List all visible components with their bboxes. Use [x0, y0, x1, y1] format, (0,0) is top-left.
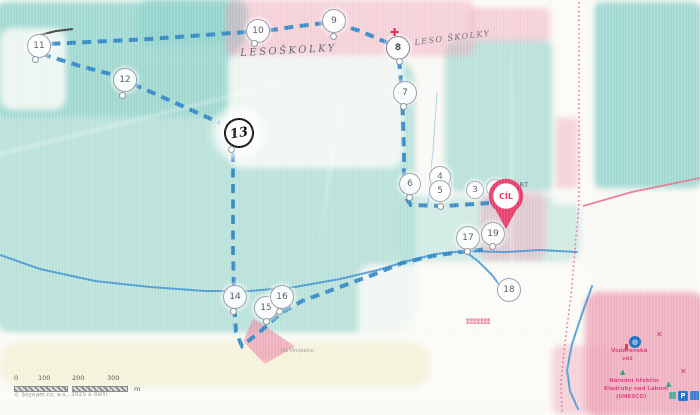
control-marker-dot — [437, 203, 444, 210]
control-10: 10 — [246, 19, 270, 43]
scale-tick: 100 — [38, 374, 50, 382]
map-label: Na Vinopalce — [281, 348, 314, 354]
control-marker-dot — [489, 243, 496, 250]
map-label: (UNESCO) — [616, 394, 647, 400]
control-marker-dot — [330, 33, 337, 40]
control-marker-dot — [396, 58, 403, 65]
control-marker-dot — [406, 194, 413, 201]
scale-tick: 0 — [14, 374, 18, 382]
control-14: 14 — [223, 285, 247, 309]
control-5: 5 — [429, 180, 451, 202]
control-marker-dot — [251, 40, 258, 47]
map-label: věž — [622, 356, 633, 362]
map-label: Národní hřebčín — [609, 378, 659, 384]
poi-square-icon — [669, 392, 676, 399]
tree-icon: ▲ — [620, 369, 625, 376]
parking-icon: P — [678, 391, 688, 401]
forest-patch — [592, 2, 700, 188]
poi-circle-icon: ◍ — [629, 336, 641, 348]
control-6: 6 — [399, 173, 421, 195]
control-18: 18 — [497, 278, 521, 302]
flag-icon — [625, 344, 628, 350]
mill-cross-icon: ✕ — [656, 331, 663, 339]
map-label: Vodárenská — [611, 348, 647, 354]
urban-area — [556, 118, 578, 188]
control-8: 8 — [386, 36, 410, 60]
control-7: 7 — [393, 81, 417, 105]
map-label: Kladruby nad Labem — [604, 386, 668, 392]
control-marker-dot — [230, 308, 237, 315]
finish-label: CÍL — [499, 190, 513, 201]
scale-unit: m — [134, 385, 140, 393]
control-marker-dot — [228, 146, 235, 153]
control-marker-dot — [119, 92, 126, 99]
control-marker-dot — [400, 103, 407, 110]
control-marker-dot — [276, 308, 283, 315]
urban-area — [552, 345, 612, 415]
first-aid-cross-icon: ✚ — [390, 27, 399, 38]
field-patch — [228, 50, 403, 168]
control-marker-dot — [32, 56, 39, 63]
scanned-map-photo: 2345678910111213141516171819 LESOŠKOLKYL… — [0, 0, 700, 415]
control-marker-dot — [464, 248, 471, 255]
control-3: 3 — [466, 181, 484, 199]
forest-patch — [445, 40, 557, 192]
control-16: 16 — [270, 285, 294, 309]
control-12: 12 — [113, 68, 137, 92]
urban-area — [466, 318, 490, 324]
control-17: 17 — [456, 226, 480, 250]
control-9: 9 — [322, 9, 346, 33]
tree-icon: ▲ — [666, 381, 671, 388]
control-11: 11 — [27, 34, 51, 58]
mill-cross-icon: ✕ — [680, 368, 687, 376]
scale-tick: 300 — [107, 374, 119, 382]
control-marker-dot — [263, 318, 270, 325]
copyright-line: © Seznam.cz, a.s., 2025 a další — [14, 392, 108, 399]
finish-pin: CÍL — [483, 175, 529, 233]
scale-tick: 200 — [72, 374, 84, 382]
info-square-icon — [690, 391, 699, 400]
